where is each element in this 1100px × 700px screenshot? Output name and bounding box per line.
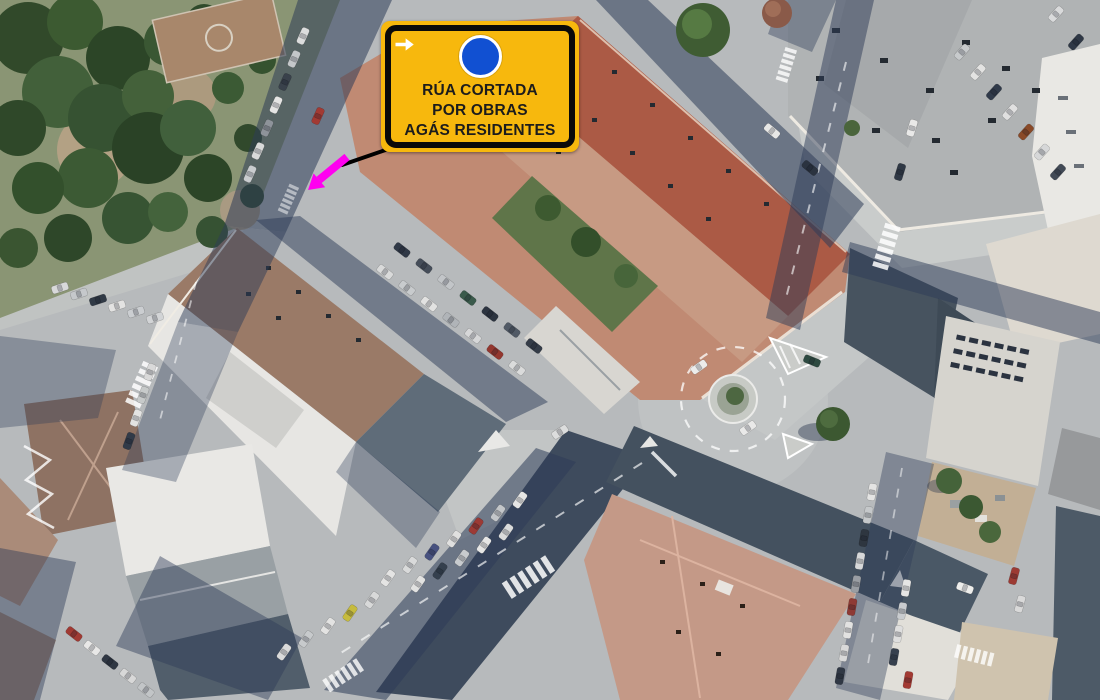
sign-line-1: RÚA CORTADA [404, 81, 555, 101]
mandatory-direction-right-icon [459, 35, 502, 78]
sign-line-2: POR OBRAS [404, 101, 555, 121]
sign-border: RÚA CORTADA POR OBRAS AGÁS RESIDENTES [385, 25, 575, 148]
sign-line-3: AGÁS RESIDENTES [404, 121, 555, 141]
road-closed-sign: RÚA CORTADA POR OBRAS AGÁS RESIDENTES [381, 21, 579, 152]
sign-text: RÚA CORTADA POR OBRAS AGÁS RESIDENTES [404, 81, 555, 141]
aerial-map-view: RÚA CORTADA POR OBRAS AGÁS RESIDENTES [0, 0, 1100, 700]
right-arrow-glyph [391, 31, 418, 58]
